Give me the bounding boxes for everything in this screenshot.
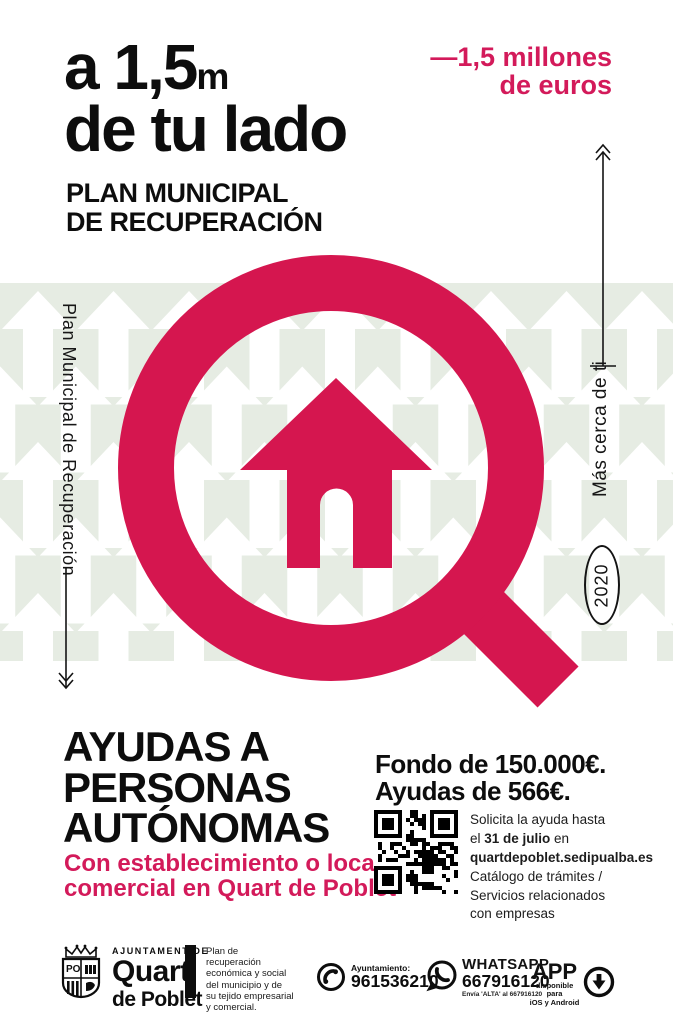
download-icon [581,964,617,1000]
budget-amount: —1,5 millones de euros [430,44,612,99]
meters-unit: m [196,55,228,97]
whatsapp-icon [424,957,460,993]
apply-instructions: Solicita la ayuda hasta el 31 de julio e… [470,811,653,924]
arrow-pattern-band [0,283,673,661]
year-badge: 2020 [584,545,620,625]
headline-line2: de tu lado [64,98,346,160]
aid-title: AYUDAS A PERSONAS AUTÓNOMAS [63,727,329,849]
right-vertical-label: Más cerca de ti [590,361,612,497]
recovery-plan-poster: a 1,5m de tu lado PLAN MUNICIPAL DE RECU… [0,0,673,1024]
headline: a 1,5m de tu lado [64,36,346,160]
plan-title: PLAN MUNICIPAL DE RECUPERACIÓN [66,179,323,237]
deadline: 31 de julio [484,831,550,846]
qr-code [374,810,458,894]
aid-condition: Con establecimiento o local comercial en… [64,851,396,901]
shield-initials: PO [66,964,81,975]
left-vertical-label: Plan Municipal de Recuperación [58,303,79,576]
phone-icon [315,961,347,993]
coat-of-arms-icon: PO [58,941,104,1003]
plan-description: Plan de recuperación económica y social … [206,946,294,1013]
fund-amounts: Fondo de 150.000€. Ayudas de 566€. [375,751,606,806]
headline-line1: a 1,5m [64,36,346,98]
app-promo: APP disponible para iOS y Android [527,962,582,1008]
footer-divider-bar [185,945,196,998]
application-url: quartdepoblet.sedipualba.es [470,850,653,865]
